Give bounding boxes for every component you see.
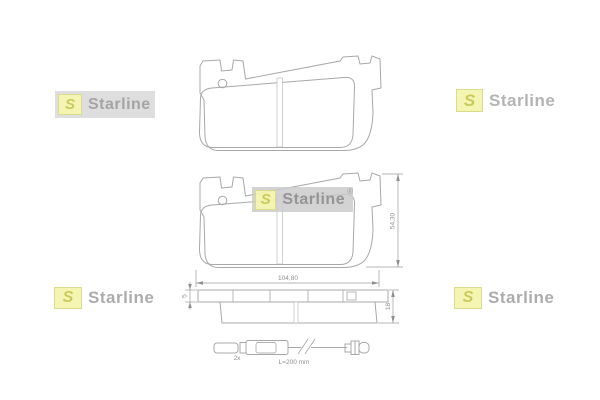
product-image-canvas: 104,80 54,30 bbox=[0, 0, 600, 400]
pad-height-label: 54,30 bbox=[390, 212, 397, 229]
pad-width-label: 104,80 bbox=[278, 275, 298, 282]
starline-watermark-top-left: S Starline bbox=[55, 91, 155, 118]
starline-watermark-top-right: S Starline bbox=[456, 89, 555, 112]
pad-front-view-top bbox=[200, 56, 382, 151]
friction-material-side bbox=[220, 302, 377, 323]
starline-watermark-center: S Starline ® bbox=[252, 187, 353, 212]
dimension-backplate-thickness: 5 bbox=[182, 282, 198, 310]
dimension-pad-height: 54,30 bbox=[366, 174, 403, 267]
total-thickness-label: 18 bbox=[385, 303, 392, 311]
starline-logo-icon: S bbox=[456, 89, 483, 112]
dimension-pad-width: 104,80 bbox=[196, 270, 379, 287]
starline-watermark-bottom-left: S Starline bbox=[54, 287, 154, 309]
starline-logo-icon: S bbox=[54, 287, 82, 309]
registered-trademark-icon: ® bbox=[347, 187, 353, 196]
sensor-quantity-label: 2x bbox=[234, 355, 242, 362]
backplate-thickness-label: 5 bbox=[182, 294, 189, 298]
starline-watermark-bottom-right: S Starline bbox=[454, 287, 554, 309]
starline-logo-text: Starline bbox=[489, 91, 555, 111]
starline-logo-text: Starline bbox=[282, 191, 345, 209]
starline-logo-text: Starline bbox=[488, 288, 554, 308]
starline-logo-icon: S bbox=[58, 94, 82, 115]
pad-side-view: 5 18 bbox=[182, 282, 400, 323]
sensor-length-label: L=200 mm bbox=[279, 359, 310, 366]
starline-logo-text: Starline bbox=[88, 288, 154, 308]
backplate-side bbox=[198, 290, 388, 302]
wear-sensor-drawing: 2x L=200 mm bbox=[214, 339, 369, 366]
sensor-tip bbox=[214, 343, 238, 353]
starline-logo-icon: S bbox=[454, 287, 482, 309]
starline-logo-text: Starline bbox=[88, 96, 151, 114]
starline-logo-icon: S bbox=[255, 190, 276, 210]
